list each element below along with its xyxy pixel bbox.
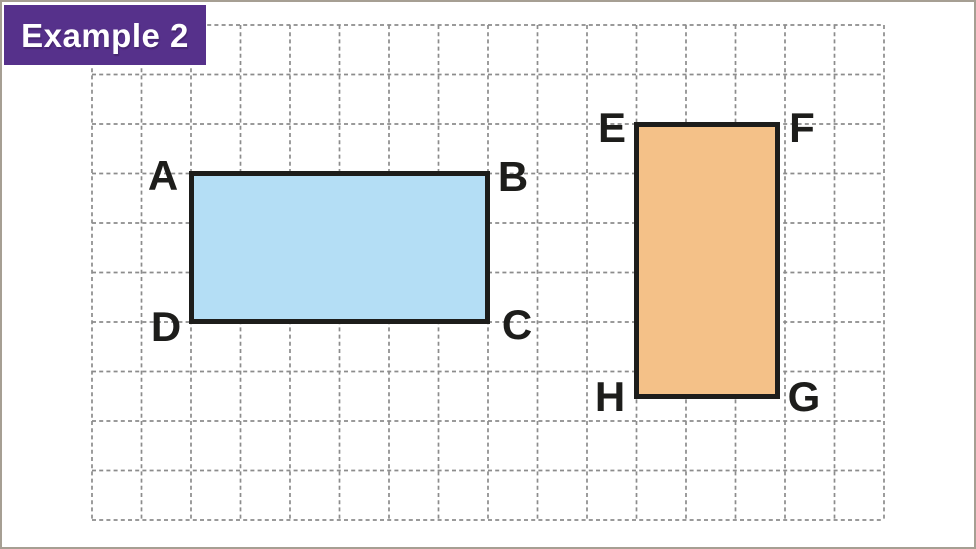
vertex-label-h: H <box>595 376 625 418</box>
vertex-label-g: G <box>788 376 821 418</box>
vertex-label-a: A <box>148 155 178 197</box>
worksheet-canvas: A B C D E F G H Example 2 <box>0 0 976 549</box>
example-badge: Example 2 <box>4 5 206 65</box>
example-badge-label: Example 2 <box>21 19 189 52</box>
vertex-label-d: D <box>151 306 181 348</box>
rectangle-abcd <box>189 171 490 324</box>
rectangle-efgh <box>634 122 780 399</box>
vertex-label-c: C <box>502 304 532 346</box>
vertex-label-b: B <box>498 156 528 198</box>
vertex-label-f: F <box>789 107 815 149</box>
vertex-label-e: E <box>598 107 626 149</box>
